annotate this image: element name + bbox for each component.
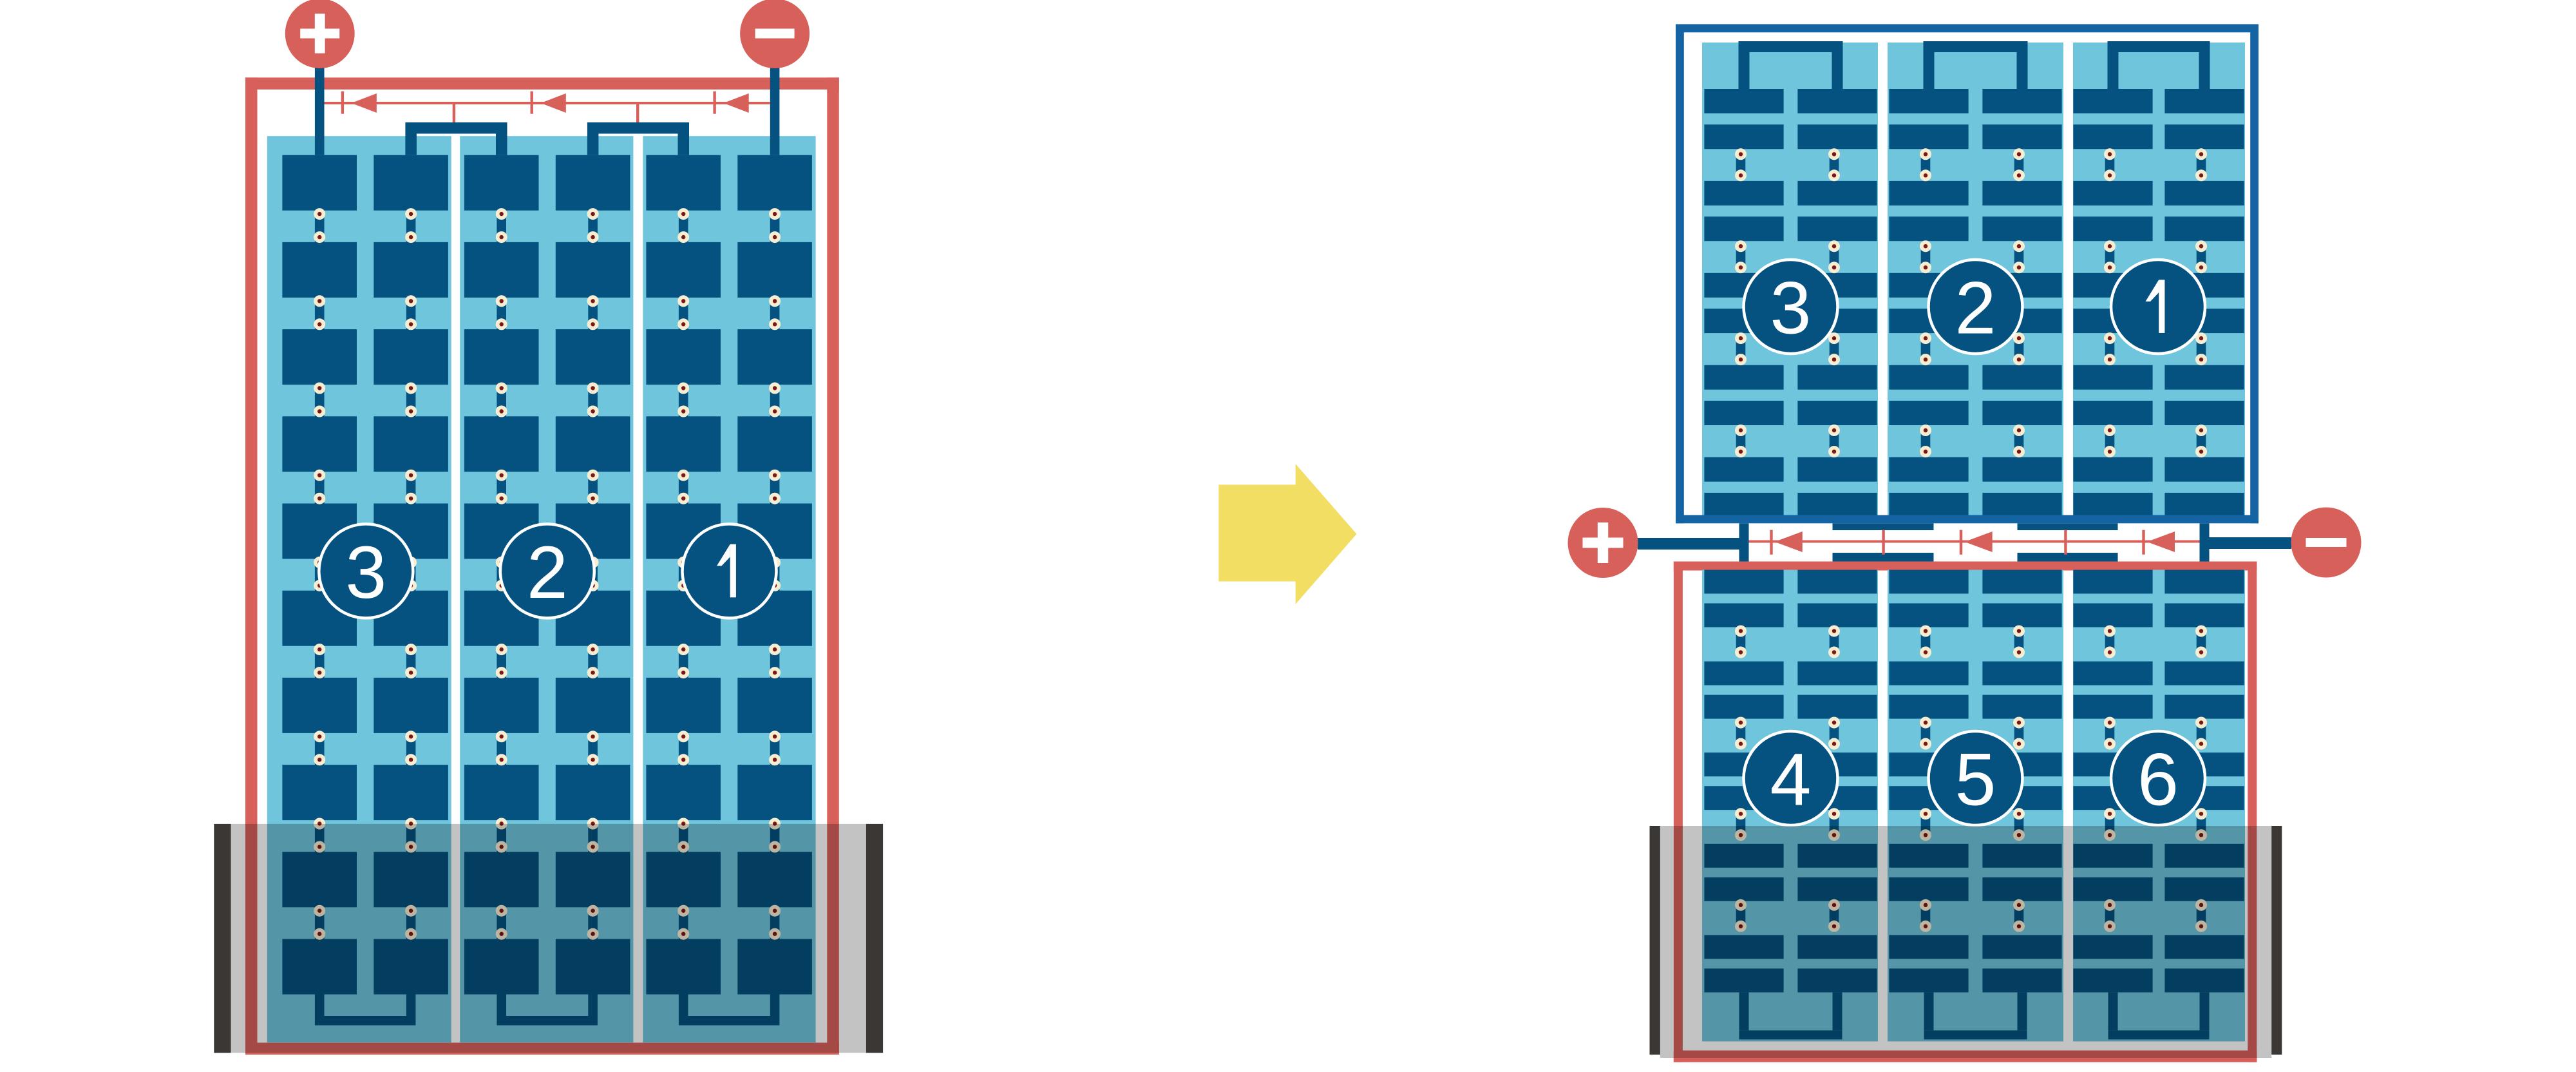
svg-text:5: 5 bbox=[1955, 739, 1996, 821]
svg-text:4: 4 bbox=[1770, 739, 1812, 821]
svg-text:2: 2 bbox=[527, 531, 568, 614]
svg-text:2: 2 bbox=[1955, 267, 1996, 350]
svg-text:3: 3 bbox=[1770, 267, 1812, 350]
svg-text:6: 6 bbox=[2137, 739, 2179, 821]
svg-text:3: 3 bbox=[345, 531, 386, 614]
